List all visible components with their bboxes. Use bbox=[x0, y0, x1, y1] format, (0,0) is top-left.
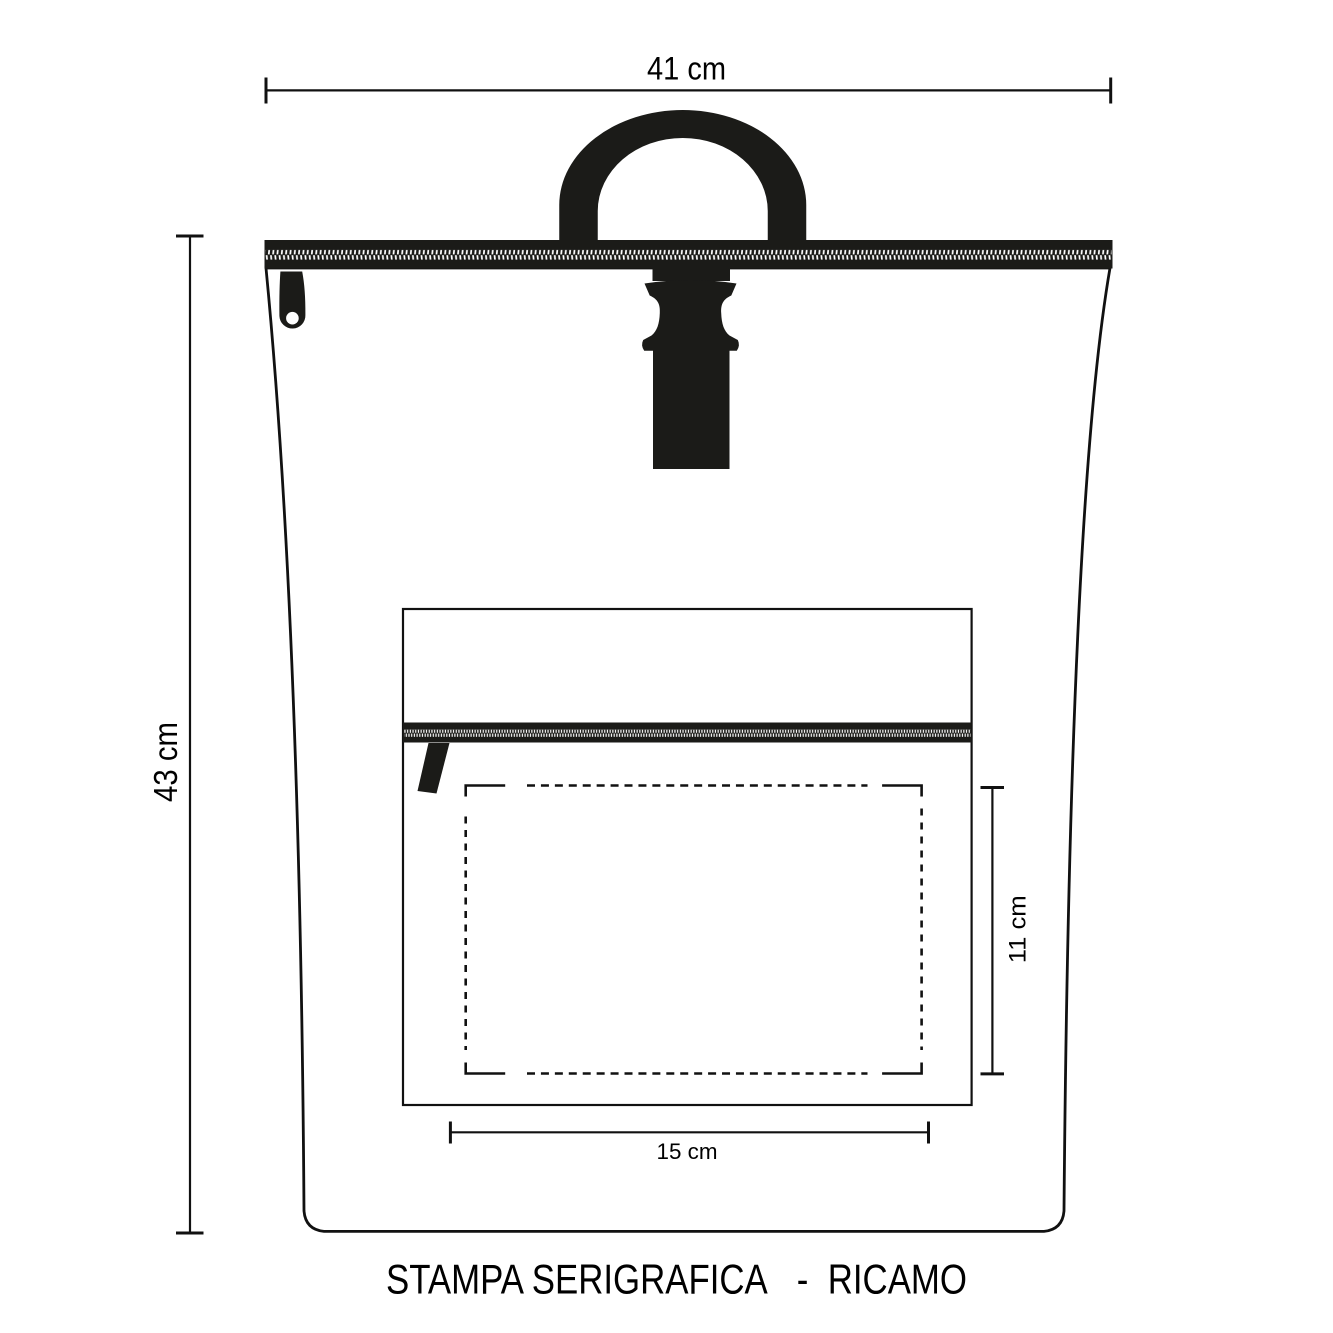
svg-text:43 cm: 43 cm bbox=[147, 722, 184, 802]
svg-text:41 cm: 41 cm bbox=[647, 51, 726, 87]
svg-text:STAMPA SERIGRAFICA - RICAMO: STAMPA SERIGRAFICA - RICAMO bbox=[386, 1256, 967, 1303]
svg-text:11 cm: 11 cm bbox=[1004, 895, 1031, 963]
svg-text:15 cm: 15 cm bbox=[657, 1139, 718, 1164]
